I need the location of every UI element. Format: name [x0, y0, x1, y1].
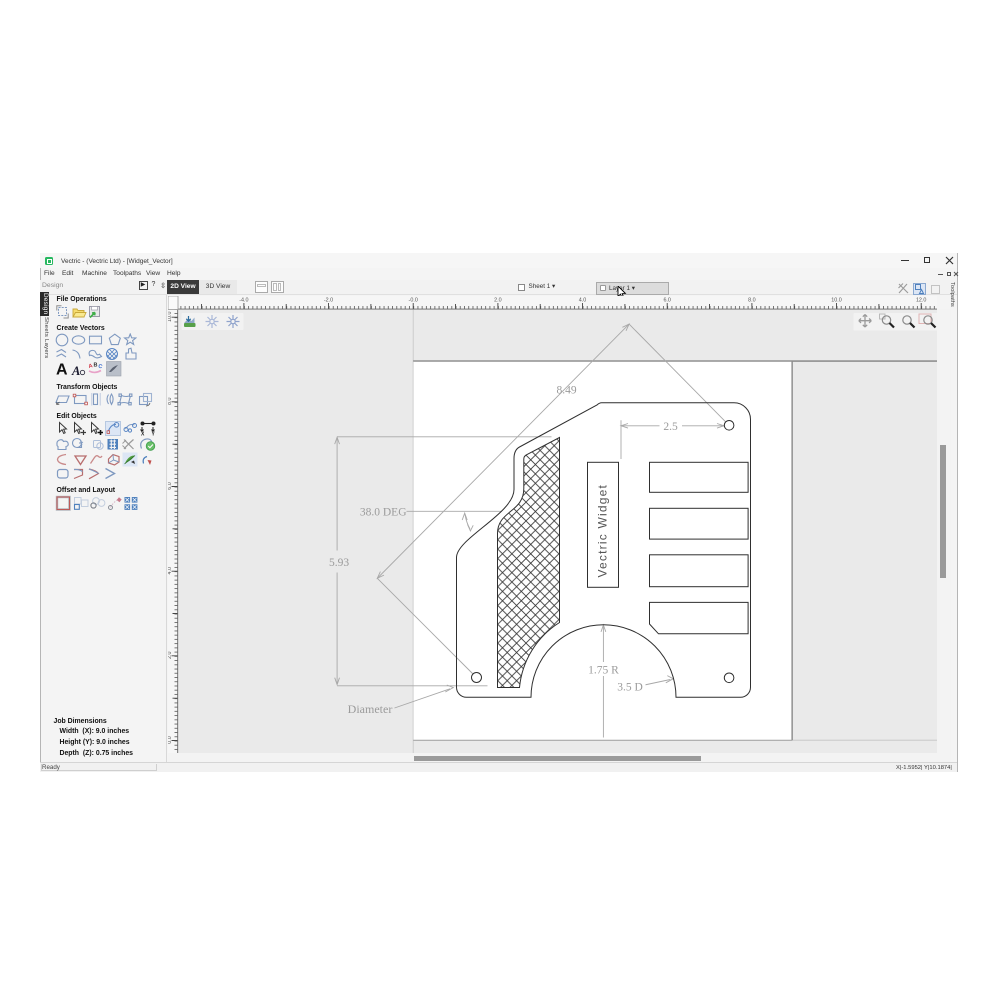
svg-text:12.0: 12.0 [915, 297, 926, 303]
svg-text:-2.0: -2.0 [323, 297, 332, 303]
svg-text:-4.0: -4.0 [239, 297, 248, 303]
svg-text:38.0 DEG: 38.0 DEG [359, 506, 406, 518]
svg-text:8.0: 8.0 [748, 297, 756, 303]
svg-text:8.0: 8.0 [168, 397, 173, 405]
svg-text:2.0: 2.0 [494, 297, 502, 303]
svg-text:X: X [141, 432, 145, 437]
svg-text:0.0: 0.0 [168, 736, 173, 744]
svg-text:Y: Y [152, 432, 156, 437]
svg-text:2.5: 2.5 [663, 421, 678, 433]
svg-text:A: A [71, 364, 80, 377]
svg-text:2.0: 2.0 [168, 651, 173, 659]
svg-text:A: A [56, 362, 68, 378]
svg-text:4.0: 4.0 [168, 566, 173, 574]
svg-text:Vectric Widget: Vectric Widget [595, 484, 609, 578]
svg-text:5.93: 5.93 [328, 557, 348, 569]
svg-text:C: C [98, 364, 103, 371]
svg-text:10.0: 10.0 [168, 311, 173, 322]
svg-text:8.49: 8.49 [556, 384, 576, 396]
svg-text:6.0: 6.0 [168, 482, 173, 490]
svg-text:4.0: 4.0 [578, 297, 586, 303]
svg-text:6.0: 6.0 [663, 297, 671, 303]
svg-text:Diameter: Diameter [347, 702, 392, 716]
svg-text:B: B [94, 362, 98, 368]
svg-text:3.5 D: 3.5 D [617, 681, 643, 693]
svg-text:1.75 R: 1.75 R [588, 664, 619, 676]
svg-text:-0.0: -0.0 [408, 297, 417, 303]
svg-text:10.0: 10.0 [831, 297, 842, 303]
